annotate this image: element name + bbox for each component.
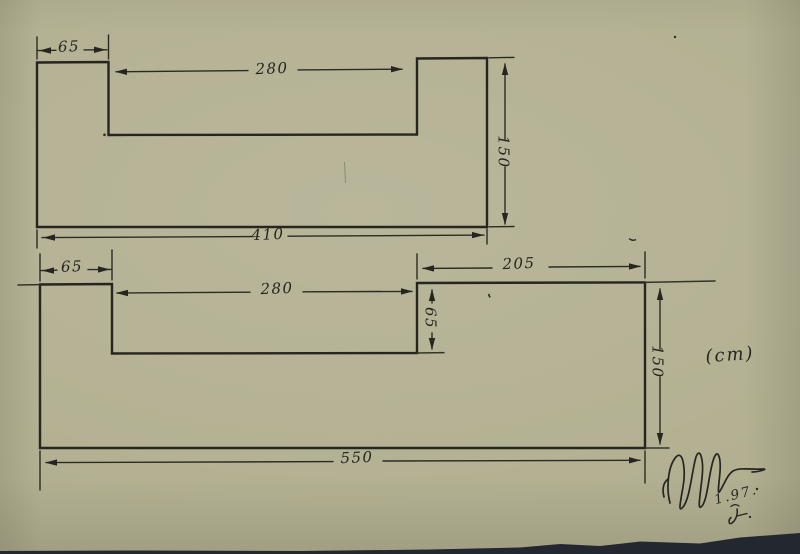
unit-label: (cm) [705, 343, 756, 367]
top-shape-outline [37, 58, 487, 227]
photo-bottom-edge [0, 533, 800, 554]
dim-label-bottom-total-width: 550 [340, 450, 374, 466]
dim-label-top-notch-width: 280 [255, 61, 289, 77]
bottom-shape-outline [40, 282, 645, 448]
drawing-linework [0, 0, 800, 554]
technical-drawing-photo: 65 280 150 410 65 280 65 205 150 550 (cm… [0, 0, 800, 554]
ink-specks [103, 36, 676, 298]
dim-label-top-tab-width: 65 [58, 39, 81, 55]
dim-label-bottom-notch-width: 280 [260, 281, 294, 297]
dim-label-top-total-width: 410 [251, 227, 285, 243]
dim-label-top-height: 150 [496, 135, 511, 168]
dim-label-bottom-right-width: 205 [502, 256, 536, 272]
bottom-shape-construction-lines [18, 281, 715, 448]
dim-label-bottom-height: 150 [650, 345, 665, 378]
dim-label-bottom-tab-width: 65 [61, 259, 84, 275]
dim-label-bottom-notch-depth: 65 [423, 307, 438, 329]
